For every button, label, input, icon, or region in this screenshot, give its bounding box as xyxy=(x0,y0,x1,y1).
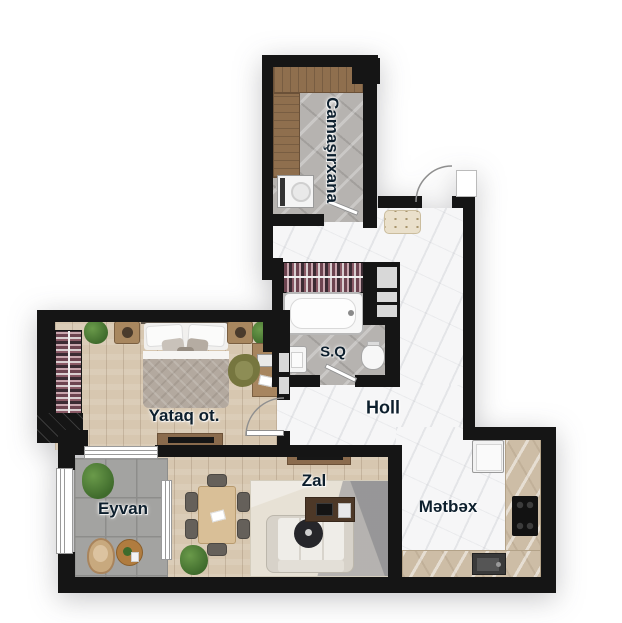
room-label-bedroom: Yataq ot. xyxy=(149,406,220,426)
wall-bathroom-bottom-right xyxy=(355,375,400,387)
bedroom-wall-niche-1 xyxy=(279,353,289,372)
wall-laundry-left xyxy=(262,55,273,280)
bathtub xyxy=(283,292,364,335)
room-label-bathroom: S.Q xyxy=(320,344,346,361)
wall-laundry-right xyxy=(363,58,377,228)
hall-shelf-niche-1 xyxy=(377,267,397,288)
entry-threshold xyxy=(456,170,477,197)
wall-kitchen-top xyxy=(463,427,551,440)
wall-bedroom-top xyxy=(37,310,290,322)
dining-chair-top xyxy=(207,474,227,487)
balcony-left-window xyxy=(56,468,73,554)
bedroom-wardrobe xyxy=(55,330,82,422)
bedroom-balcony-window xyxy=(84,446,158,459)
living-plant xyxy=(180,545,208,575)
dining-chair-bottom xyxy=(207,543,227,556)
wall-balcony-left-top xyxy=(58,430,75,470)
hall-shelf-niche-3 xyxy=(377,305,397,317)
dining-table xyxy=(198,486,236,544)
nightstand-right xyxy=(227,321,253,344)
coffee-table xyxy=(294,519,323,548)
hall-shelf-niche-2 xyxy=(377,292,397,302)
nightstand-left xyxy=(114,321,140,344)
room-label-hall: Holl xyxy=(366,398,400,419)
apartment-floor-plan: Camaşırxana S.Q Holl Yataq ot. Eyvan Zal… xyxy=(0,0,622,623)
dining-chair-left-2 xyxy=(185,519,198,539)
wall-living-kitchen-divider xyxy=(388,445,402,580)
wall-living-top xyxy=(155,445,400,457)
balcony-chair xyxy=(87,538,115,574)
room-label-balcony: Eyvan xyxy=(98,499,148,519)
living-side-console xyxy=(305,497,355,522)
washing-machine xyxy=(277,175,314,208)
balcony-plant xyxy=(82,463,114,499)
fridge xyxy=(472,440,504,473)
cooktop xyxy=(512,496,538,536)
bedroom-plant-left xyxy=(84,320,108,344)
laundry-cabinet-left xyxy=(273,93,300,178)
wall-entry-left xyxy=(378,196,422,208)
room-label-kitchen: Mətbəx xyxy=(419,497,478,517)
balcony-table xyxy=(116,539,143,566)
room-label-laundry: Camaşırxana xyxy=(322,97,342,203)
bedroom-wall-niche-2 xyxy=(279,377,289,394)
entry-ottoman xyxy=(384,210,421,234)
wall-laundry-bottom xyxy=(262,214,324,226)
wall-kitchen-right xyxy=(541,427,556,593)
kitchen-sink xyxy=(472,553,506,575)
wall-hall-right xyxy=(463,196,475,434)
bedroom-door-leaf xyxy=(246,430,284,436)
dining-chair-left-1 xyxy=(185,492,198,512)
room-label-living: Zal xyxy=(302,471,327,491)
hall-wardrobe xyxy=(283,262,365,293)
wall-bottom xyxy=(58,577,556,593)
dining-chair-right-2 xyxy=(237,519,250,539)
toilet xyxy=(361,344,385,370)
floor-plan-canvas: Camaşırxana S.Q Holl Yataq ot. Eyvan Zal… xyxy=(0,0,622,623)
dining-chair-right-1 xyxy=(237,492,250,512)
balcony-living-window xyxy=(161,480,172,560)
laundry-cabinet-top xyxy=(273,66,364,93)
bed xyxy=(141,320,231,408)
